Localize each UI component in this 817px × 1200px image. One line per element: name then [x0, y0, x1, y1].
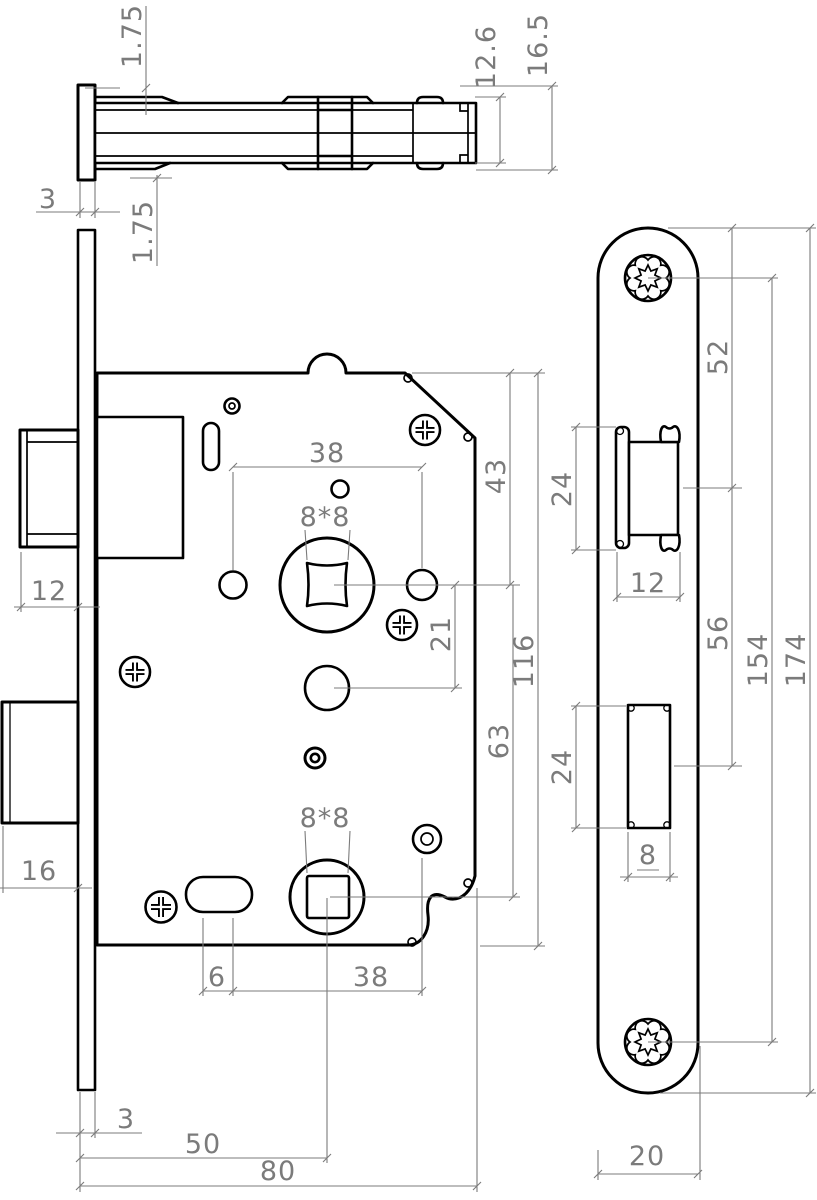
- dim-faceplate-length: 174: [781, 633, 812, 688]
- dim-latch-height: 24: [547, 471, 578, 507]
- dim-width-inner: 12.6: [471, 25, 502, 89]
- dim-spindle-square-bottom: 8*8: [300, 803, 351, 834]
- mortise-lock-drawing: 1.75 12.6 16.5 3 1.75 38 43 8*8 21 116 6…: [0, 0, 817, 1200]
- dim-backset: 50: [185, 1129, 221, 1160]
- dim-spindle-square-top: 8*8: [300, 502, 351, 533]
- deadbolt-cutout: [628, 705, 670, 828]
- dim-deadbolt-width: 8: [639, 840, 657, 871]
- latch-cutout: [616, 426, 680, 550]
- dim-deadbolt-projection: 16: [21, 856, 57, 887]
- dim-spindle-spacing: 63: [484, 723, 515, 759]
- dim-slot-length: 6: [208, 962, 226, 993]
- latch-guide-block: [97, 417, 183, 558]
- top-view: [78, 85, 476, 180]
- faceplate-front: [598, 228, 698, 1093]
- front-faceplate-edge: [78, 230, 95, 1090]
- dim-deadbolt-height: 24: [547, 749, 578, 785]
- dim-hole-spacing-bottom: 38: [353, 962, 389, 993]
- latch-body: [629, 442, 678, 535]
- dim-faceplate-thickness-front: 3: [117, 1104, 135, 1135]
- dim-case-depth: 80: [260, 1156, 296, 1187]
- latch-bolt: [20, 430, 78, 547]
- dim-flange-top: 1.75: [117, 4, 148, 68]
- latch-ear-top: [660, 426, 679, 442]
- latch-face-strip: [616, 427, 629, 548]
- top-view-faceplate-section: [78, 85, 95, 180]
- dim-latch-projection: 12: [31, 576, 67, 607]
- deadbolt-opening: [628, 705, 670, 828]
- technical-drawing-page: 1.75 12.6 16.5 3 1.75 38 43 8*8 21 116 6…: [0, 0, 817, 1200]
- dim-latch-width: 12: [630, 568, 666, 599]
- dim-faceplate-thickness-top: 3: [39, 184, 57, 215]
- dim-top-to-spindle: 43: [481, 458, 512, 494]
- dim-hole-spacing-top: 38: [309, 438, 345, 469]
- deadbolt: [2, 702, 78, 823]
- dim-latch-to-deadbolt: 56: [703, 615, 734, 651]
- front-view: [2, 230, 475, 1090]
- dim-top-to-latch: 52: [703, 339, 734, 375]
- dim-width-outer: 16.5: [523, 13, 554, 77]
- side-view: [598, 228, 698, 1093]
- dim-flange-bottom: 1.75: [128, 200, 159, 264]
- latch-ear-bottom: [660, 535, 679, 551]
- dim-screw-spacing: 154: [743, 633, 774, 688]
- dim-case-height: 116: [509, 634, 540, 689]
- dim-spindle-to-cylinder: 21: [426, 616, 457, 652]
- dim-faceplate-width: 20: [629, 1141, 665, 1172]
